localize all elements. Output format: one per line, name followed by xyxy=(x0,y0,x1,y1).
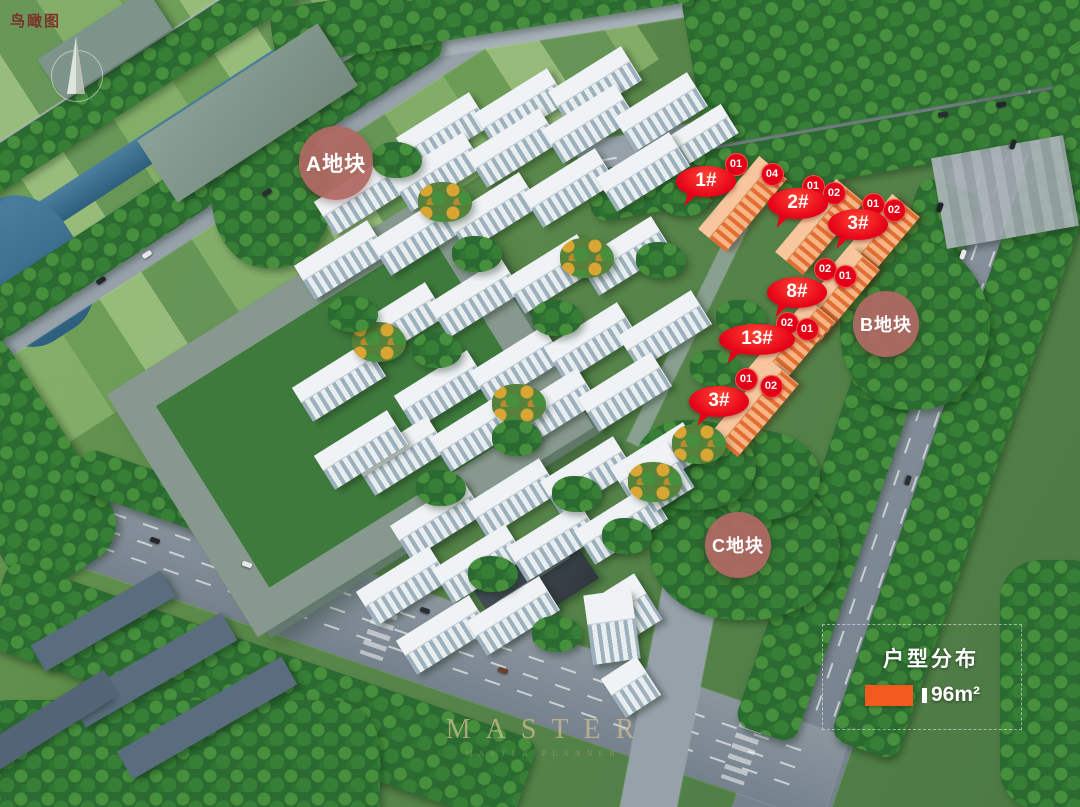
tc xyxy=(552,476,602,512)
building-bubble-4-13-label: 13# xyxy=(741,328,773,350)
unit-badge-11-02: 02 xyxy=(760,375,783,398)
building-bubble-1-2: 2# xyxy=(768,188,828,219)
view-title: 鸟瞰图 xyxy=(10,10,61,31)
north-compass-icon xyxy=(46,36,106,102)
building-bubble-3-8-label: 8# xyxy=(786,281,807,303)
plot-badge-A-label: A地块 xyxy=(306,148,366,178)
legend-title: 户型分布 xyxy=(883,643,979,673)
unit-badge-1-04: 04 xyxy=(761,163,784,186)
building-bubble-2-3-label: 3# xyxy=(847,213,868,235)
compass-needle-light xyxy=(67,36,76,94)
tcy xyxy=(560,238,614,278)
unit-badge-4-01-label: 01 xyxy=(867,198,879,210)
unit-badge-0-01-label: 01 xyxy=(730,158,742,170)
unit-badge-9-01: 01 xyxy=(796,318,819,341)
compass-needle-shadow xyxy=(76,36,85,94)
building-bubble-4-13: 13# xyxy=(719,324,795,355)
plot-badge-C: C地块 xyxy=(705,512,771,578)
unit-badge-6-02-label: 02 xyxy=(819,263,831,275)
legend-row: 96m² xyxy=(865,683,980,707)
legend-panel: 户型分布 96m² xyxy=(822,624,1022,730)
tcy xyxy=(418,182,472,222)
unit-badge-7-01-label: 01 xyxy=(839,270,851,282)
building-bubble-5-3: 3# xyxy=(689,386,749,417)
legend-swatch-96m2 xyxy=(865,685,913,706)
legend-label: 96m² xyxy=(931,683,980,707)
compass-needle xyxy=(67,36,85,94)
building-bubble-0-1-label: 1# xyxy=(695,170,716,192)
unit-badge-10-01: 01 xyxy=(735,368,758,391)
building-bubble-5-3-label: 3# xyxy=(708,390,729,412)
building-bubble-3-8: 8# xyxy=(767,277,827,308)
bw xyxy=(583,589,640,665)
building-bubble-2-3: 3# xyxy=(828,209,888,240)
plot-badge-C-label: C地块 xyxy=(712,532,764,558)
tc xyxy=(532,300,582,336)
plot-badge-B: B地块 xyxy=(853,291,919,357)
building-bubble-0-1: 1# xyxy=(676,166,736,197)
tc xyxy=(452,236,502,272)
tc xyxy=(602,518,652,554)
tc xyxy=(532,616,582,652)
unit-badge-5-02-label: 02 xyxy=(888,204,900,216)
unit-badge-11-02-label: 02 xyxy=(765,380,777,392)
unit-badge-9-01-label: 01 xyxy=(801,323,813,335)
tc xyxy=(328,296,378,332)
plot-badge-A: A地块 xyxy=(299,126,373,200)
unit-badge-7-01: 01 xyxy=(834,265,857,288)
tc xyxy=(412,332,462,368)
building-bubble-1-2-label: 2# xyxy=(787,192,808,214)
unit-badge-3-02-label: 02 xyxy=(828,187,840,199)
tc xyxy=(492,420,542,456)
unit-badge-10-01-label: 01 xyxy=(740,373,752,385)
aerial-masterplan-image: 鸟瞰图 户型分布 96m² MASTER MASTER PLANNER A地块B… xyxy=(0,0,1080,807)
tcy xyxy=(672,424,726,464)
tcy xyxy=(628,462,682,502)
tc xyxy=(372,142,422,178)
unit-badge-1-04-label: 04 xyxy=(766,168,778,180)
tc xyxy=(468,556,518,592)
tcy xyxy=(492,384,546,424)
tc xyxy=(416,470,466,506)
legend-tick xyxy=(922,688,927,703)
tc xyxy=(636,242,686,278)
plot-badge-B-label: B地块 xyxy=(860,311,912,337)
